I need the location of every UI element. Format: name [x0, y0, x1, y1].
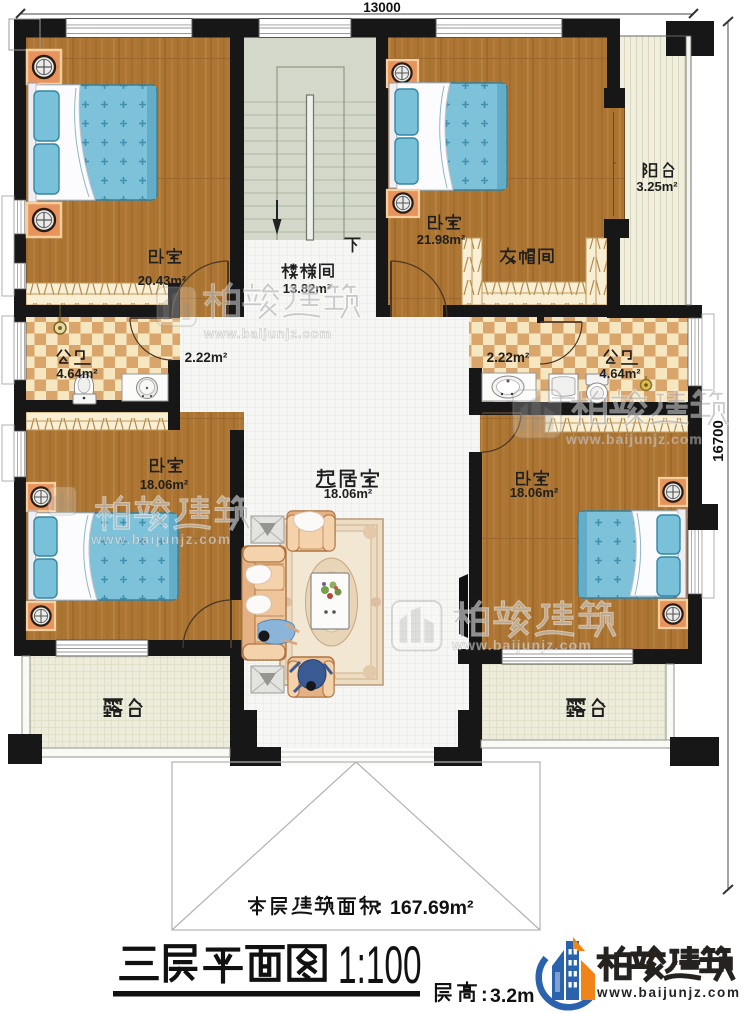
- svg-text:4.64m²: 4.64m²: [56, 366, 98, 381]
- svg-text:18.06m²: 18.06m²: [510, 485, 559, 500]
- svg-text:www.baijunjz.com: www.baijunjz.com: [451, 637, 592, 653]
- svg-text:18.06m²: 18.06m²: [324, 486, 373, 501]
- svg-text:1:100: 1:100: [338, 936, 422, 995]
- svg-text:www.baijunjz.com: www.baijunjz.com: [565, 431, 703, 447]
- svg-text:4.64m²: 4.64m²: [599, 366, 641, 381]
- svg-text:16700: 16700: [710, 420, 727, 462]
- svg-text::: :: [376, 896, 383, 918]
- svg-text:3.25m²: 3.25m²: [636, 179, 678, 194]
- svg-text:2.22m²: 2.22m²: [487, 350, 530, 365]
- svg-text:13000: 13000: [363, 0, 401, 15]
- svg-text:www.baijunjz.com: www.baijunjz.com: [596, 985, 741, 1000]
- svg-text:www.baijunjz.com: www.baijunjz.com: [203, 326, 332, 341]
- svg-text:20.43m²: 20.43m²: [138, 273, 187, 288]
- svg-text:www.baijunjz.com: www.baijunjz.com: [90, 532, 232, 547]
- svg-text:167.69m²: 167.69m²: [390, 897, 474, 919]
- svg-text:21.98m²: 21.98m²: [417, 232, 466, 247]
- svg-text:2.22m²: 2.22m²: [185, 350, 228, 365]
- svg-text::: :: [481, 984, 488, 1006]
- svg-text:3.2m: 3.2m: [490, 985, 534, 1007]
- svg-text:18.06m²: 18.06m²: [140, 477, 189, 492]
